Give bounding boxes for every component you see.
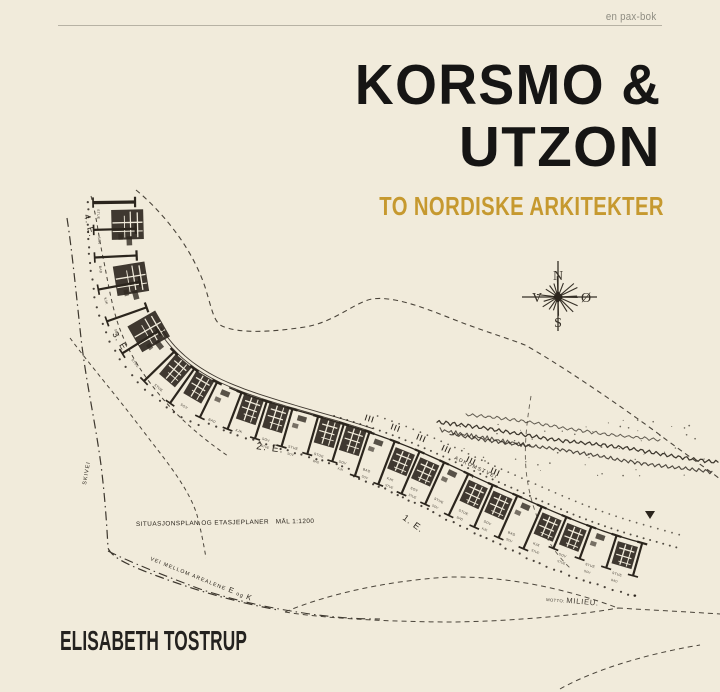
svg-text:SOV: SOV <box>287 451 295 457</box>
svg-text:STUE: STUE <box>313 452 324 459</box>
svg-text:STUE: STUE <box>612 571 623 578</box>
svg-text:STUE: STUE <box>531 548 540 555</box>
svg-text:STUE: STUE <box>557 559 566 566</box>
svg-text:SITUASJONSPLAN OG ETASJEPLAN: SITUASJONSPLAN OG ETASJEPLANER MÅL 1:120… <box>136 516 315 528</box>
svg-text:STUE: STUE <box>130 358 140 369</box>
svg-text:4. E.: 4. E. <box>82 213 97 238</box>
svg-text:STUE: STUE <box>288 444 299 451</box>
svg-text:SOV: SOV <box>97 236 101 245</box>
svg-text:BAD: BAD <box>456 515 464 522</box>
svg-text:KJK: KJK <box>386 476 395 483</box>
svg-text:SOV: SOV <box>483 520 492 527</box>
svg-text:STUE: STUE <box>408 493 417 500</box>
svg-text:SOV: SOV <box>361 474 370 480</box>
svg-text:SOV: SOV <box>558 552 567 559</box>
svg-text:KJK: KJK <box>532 541 541 548</box>
svg-text:KJK: KJK <box>481 526 489 532</box>
svg-text:2. E.: 2. E. <box>256 441 285 456</box>
svg-text:V: V <box>532 291 542 306</box>
svg-text:3. E.: 3. E. <box>110 330 131 355</box>
svg-text:KJK: KJK <box>103 297 109 305</box>
svg-text:BAD: BAD <box>362 467 371 474</box>
svg-text:STUE: STUE <box>96 209 100 220</box>
svg-text:MOTTO: MILIEU.: MOTTO: MILIEU. <box>546 594 599 608</box>
svg-text:N: N <box>553 269 563 284</box>
svg-text:SOV: SOV <box>583 569 591 575</box>
svg-text:KJK: KJK <box>235 428 243 434</box>
svg-text:VEI MELLOM AREALENE E og K: VEI MELLOM AREALENE E og K <box>149 554 254 603</box>
svg-text:KJK: KJK <box>337 466 345 472</box>
svg-text:Ø: Ø <box>581 291 591 306</box>
svg-text:SOV: SOV <box>505 537 514 544</box>
svg-text:STUE: STUE <box>585 562 596 569</box>
svg-text:SOV: SOV <box>431 503 440 510</box>
svg-text:SOV: SOV <box>180 403 189 411</box>
svg-text:SKIVEI: SKIVEI <box>82 461 92 485</box>
svg-text:STUE: STUE <box>153 383 164 393</box>
svg-text:SOV: SOV <box>410 486 419 493</box>
svg-text:1. E.: 1. E. <box>401 513 426 535</box>
svg-text:SOV: SOV <box>338 459 347 465</box>
svg-text:BAD: BAD <box>611 578 619 584</box>
svg-text:BAD: BAD <box>98 266 103 275</box>
svg-text:BAD: BAD <box>507 530 516 537</box>
svg-text:S: S <box>554 316 562 331</box>
